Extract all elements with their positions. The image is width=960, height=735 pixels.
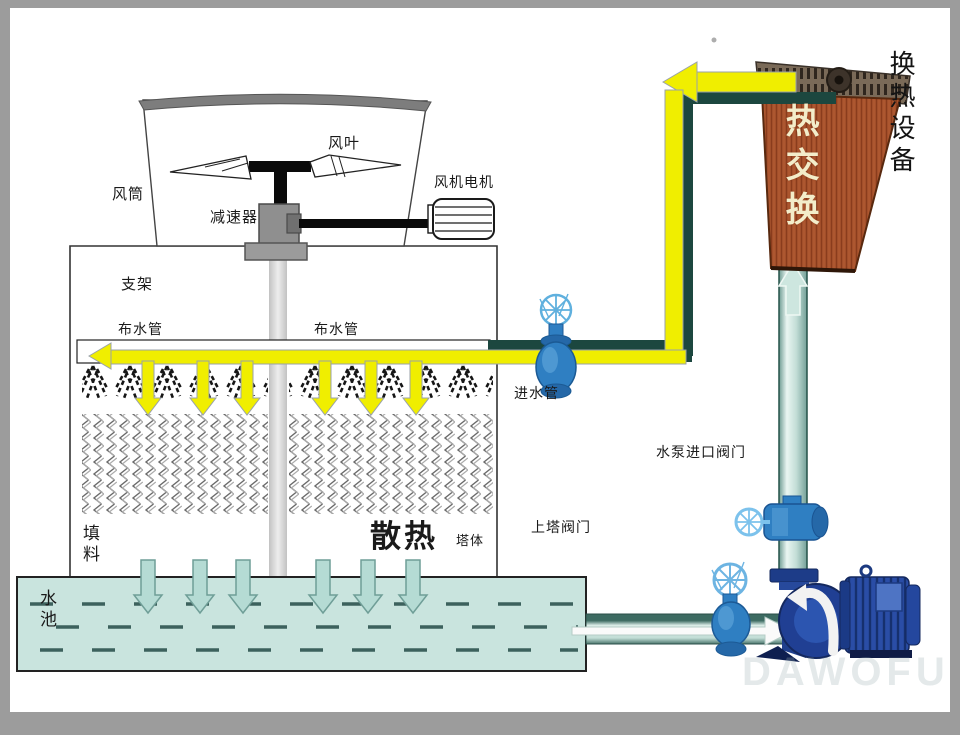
label-pump-inlet-valve: 水泵进口阀门 (656, 445, 746, 461)
stray-mark (712, 38, 717, 43)
label-inlet-pipe: 进水管 (514, 386, 559, 402)
label-fan-blade: 风叶 (328, 136, 360, 153)
label-tower-body: 塔体 (456, 534, 484, 549)
water-pool-shape (17, 577, 586, 671)
drive-shaft (299, 219, 433, 228)
fan-motor-shape (428, 199, 494, 239)
label-water-dist-right: 布水管 (314, 322, 359, 338)
label-heat-exchange: 热交换 (780, 103, 818, 235)
watermark: DAWOFU (742, 650, 950, 695)
label-water-pool: 水池 (37, 589, 56, 631)
diagram-page: 风叶 风筒 减速器 风机电机 支架 布水管 布水管 进水管 水泵进口阀门 上塔阀… (0, 0, 960, 735)
label-fill-material: 填料 (80, 524, 99, 566)
discharge-flange (770, 569, 818, 582)
suction-pipe (572, 614, 793, 645)
label-heat-dissipation: 散热 (370, 520, 438, 555)
label-tower-valve: 上塔阀门 (531, 520, 591, 536)
terminal-box (876, 583, 902, 611)
label-support: 支架 (121, 277, 153, 294)
label-reducer: 减速器 (210, 210, 258, 227)
riser-pipe (269, 256, 287, 577)
label-heat-exchange-equipment: 换热设备 (886, 50, 915, 178)
label-fan-motor: 风机电机 (434, 175, 494, 191)
label-water-dist-left: 布水管 (118, 322, 163, 338)
label-fan-duct: 风筒 (112, 187, 144, 204)
